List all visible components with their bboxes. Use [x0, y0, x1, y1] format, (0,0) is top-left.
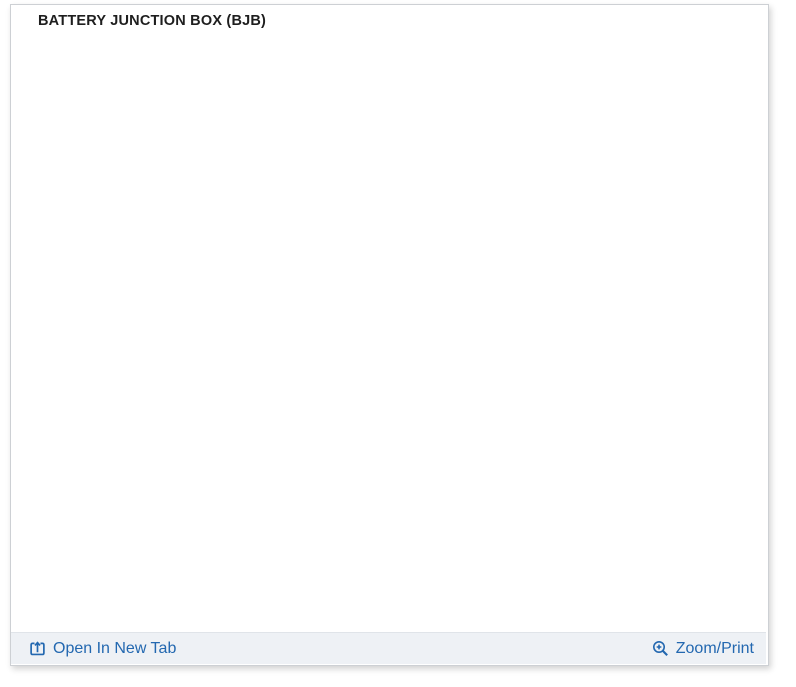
open-in-new-tab-label: Open In New Tab [53, 640, 176, 658]
footer-toolbar: Open In New Tab Zoom/Print [11, 632, 766, 664]
page: F56F57F58F59F60F61F62F63F64F65F66F67F68F… [0, 0, 796, 687]
zoom-print-label: Zoom/Print [676, 640, 754, 658]
fusebox-panel [10, 4, 769, 666]
open-in-new-tab-icon [29, 640, 46, 657]
open-in-new-tab-link[interactable]: Open In New Tab [29, 640, 176, 658]
zoom-print-link[interactable]: Zoom/Print [652, 640, 754, 658]
magnifier-plus-icon [652, 640, 669, 657]
page-title: BATTERY JUNCTION BOX (BJB) [38, 13, 266, 29]
